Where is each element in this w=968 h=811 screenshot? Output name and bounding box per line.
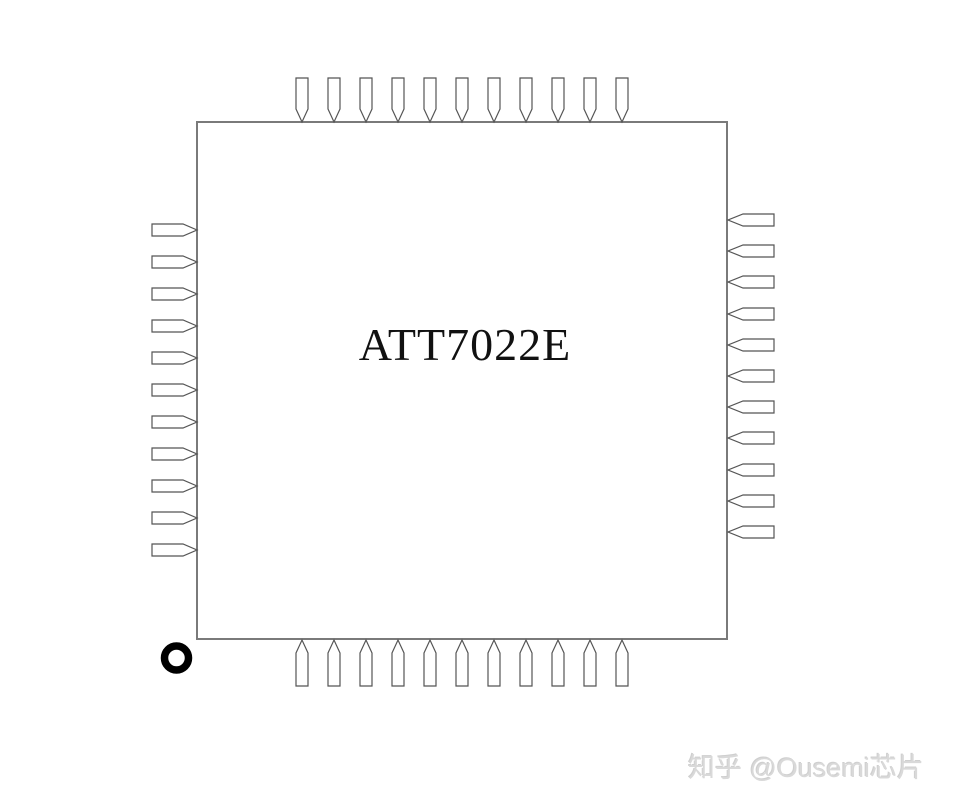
pin-3-label (354, 697, 378, 811)
pin-25-label (546, 0, 570, 76)
pin-32-label (322, 0, 346, 76)
pin-7-label (482, 697, 506, 811)
pin-13-arrow (728, 495, 774, 507)
pin-10-arrow (584, 640, 596, 686)
pin-3-arrow (360, 640, 372, 686)
pin-1-label (290, 697, 314, 811)
pin-44-arrow (152, 544, 197, 556)
pin-10-label (578, 697, 602, 811)
pin-14-arrow (728, 464, 774, 476)
pin-21-arrow (728, 245, 774, 257)
pin-39-arrow (152, 384, 197, 396)
pin-11-number (600, 611, 644, 633)
pin-12-number (695, 502, 717, 562)
pin-11-arrow (616, 640, 628, 686)
pin-1-arrow (296, 640, 308, 686)
pin-28-label (450, 0, 474, 76)
pin-29-label (418, 0, 442, 76)
pin-33-arrow (296, 78, 308, 122)
pin-31-arrow (360, 78, 372, 122)
pin-24-arrow (584, 78, 596, 122)
diagram-shapes-layer (0, 0, 968, 811)
pin-19-arrow (728, 308, 774, 320)
pin-18-arrow (728, 339, 774, 351)
pin-27-label (482, 0, 506, 76)
pin-8-label (514, 697, 538, 811)
pin-2-label (322, 697, 346, 811)
pin-8-arrow (520, 640, 532, 686)
pin-2-arrow (328, 640, 340, 686)
pin-37-arrow (152, 320, 197, 332)
pin-30-arrow (392, 78, 404, 122)
pin-31-label (354, 0, 378, 76)
pin-20-arrow (728, 276, 774, 288)
pin-15-arrow (728, 432, 774, 444)
pin-26-arrow (520, 78, 532, 122)
pin-16-arrow (728, 401, 774, 413)
pin-12-arrow (728, 526, 774, 538)
pin-7-arrow (488, 640, 500, 686)
pin-23-arrow (616, 78, 628, 122)
pin1-indicator (165, 646, 189, 670)
chip-part-number: ATT7022E (359, 320, 571, 370)
pin-4-label (386, 697, 410, 811)
pin-26-label (514, 0, 538, 76)
pin-5-arrow (424, 640, 436, 686)
pin-22-arrow (728, 214, 774, 226)
pin-9-label (546, 697, 570, 811)
pin-38-arrow (152, 352, 197, 364)
pin-33-label (290, 0, 314, 76)
pin-41-arrow (152, 448, 197, 460)
pin-23-label (610, 0, 634, 76)
pin-32-arrow (328, 78, 340, 122)
pin-42-arrow (152, 480, 197, 492)
pin-28-arrow (456, 78, 468, 122)
chip-body (197, 122, 727, 639)
pin-34-arrow (152, 224, 197, 236)
pin-5-label (418, 697, 442, 811)
pinout-diagram: ATT7022E 知乎 @Ousemi芯片 (0, 0, 968, 811)
pin-43-arrow (152, 512, 197, 524)
pin-17-arrow (728, 370, 774, 382)
pin-11-label (610, 697, 634, 811)
pin-35-arrow (152, 256, 197, 268)
pin-44-number (204, 520, 226, 580)
pin-4-arrow (392, 640, 404, 686)
pin-6-arrow (456, 640, 468, 686)
pin-6-label (450, 697, 474, 811)
pin-27-arrow (488, 78, 500, 122)
pin-40-arrow (152, 416, 197, 428)
pin-24-label (578, 0, 602, 76)
watermark: 知乎 @Ousemi芯片 (688, 752, 958, 784)
pin-30-label (386, 0, 410, 76)
pin-36-arrow (152, 288, 197, 300)
pin-23-number (600, 127, 644, 149)
pin-29-arrow (424, 78, 436, 122)
pin-9-arrow (552, 640, 564, 686)
pin-25-arrow (552, 78, 564, 122)
